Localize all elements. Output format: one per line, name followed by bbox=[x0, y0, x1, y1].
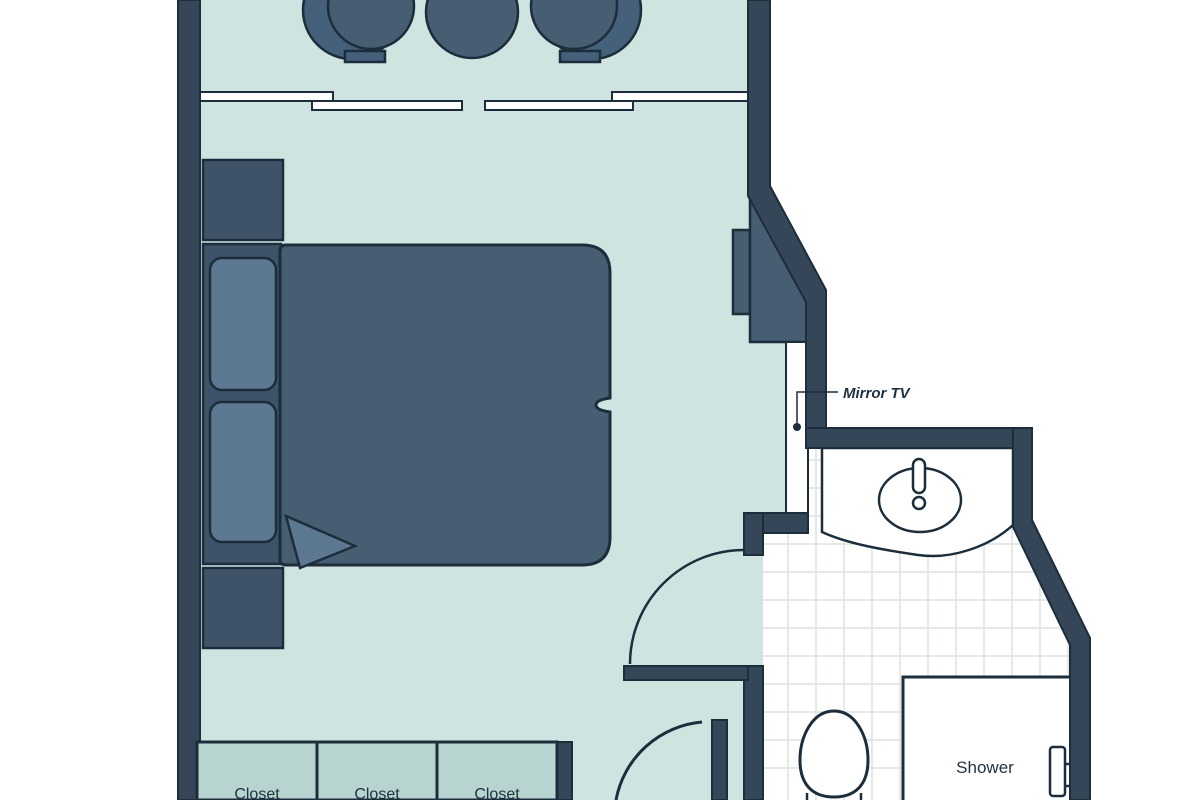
shower-label: Shower bbox=[956, 758, 1014, 777]
bathroom-top-wall bbox=[806, 428, 1032, 448]
closet-label-2: Closet bbox=[354, 786, 400, 800]
floorplan-svg: Shower Closet Closet Closet Mirror TV bbox=[0, 0, 1200, 800]
faucet-icon bbox=[913, 459, 925, 493]
left-wall bbox=[178, 0, 200, 800]
closets: Closet Closet Closet bbox=[197, 742, 557, 800]
callout-dot bbox=[793, 423, 801, 431]
vanity bbox=[822, 448, 1013, 556]
closet-end-wall bbox=[557, 742, 572, 800]
entry-door-leaf bbox=[712, 720, 727, 800]
wall-stub-vertical bbox=[744, 513, 763, 555]
nightstand-bottom bbox=[203, 568, 283, 648]
toilet-bowl bbox=[800, 711, 868, 797]
balcony-seating bbox=[303, 0, 641, 62]
bathroom-partition-wall bbox=[744, 666, 763, 800]
closet-label-3: Closet bbox=[474, 786, 520, 800]
nightstand-top bbox=[203, 160, 283, 240]
closet-label-1: Closet bbox=[234, 786, 280, 800]
mirror-tv-label: Mirror TV bbox=[843, 385, 912, 402]
sliding-door-panel-upper-left bbox=[198, 92, 333, 101]
sliding-door-panel-lower-left bbox=[312, 101, 462, 110]
bed-mattress bbox=[280, 245, 610, 565]
floorplan-canvas: Shower Closet Closet Closet Mirror TV bbox=[0, 0, 1200, 800]
sliding-door-panel-lower-right bbox=[485, 101, 633, 110]
shower: Shower bbox=[903, 677, 1072, 800]
bathroom-door-leaf bbox=[624, 666, 748, 680]
right-chair-armrest bbox=[560, 51, 600, 62]
desk-stool bbox=[733, 230, 750, 314]
shower-enclosure bbox=[903, 677, 1071, 800]
left-chair-armrest bbox=[345, 51, 385, 62]
pillow-top bbox=[210, 258, 276, 390]
shower-handle bbox=[1050, 747, 1065, 796]
sliding-door-panel-upper-right bbox=[612, 92, 750, 101]
pillow-bottom bbox=[210, 402, 276, 542]
drain-icon bbox=[913, 497, 925, 509]
toilet bbox=[800, 711, 868, 800]
